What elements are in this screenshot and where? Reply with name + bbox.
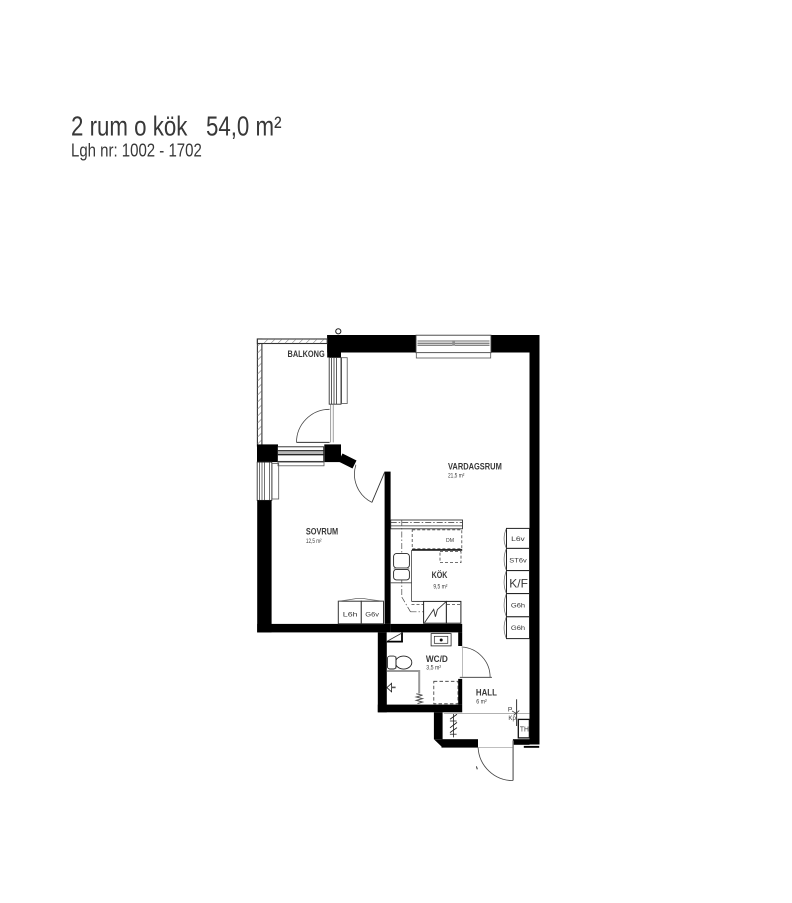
svg-text:SOVRUM: SOVRUM [306,526,338,536]
svg-text:HALL: HALL [476,688,497,698]
svg-text:DM: DM [446,538,454,544]
svg-text:BALKONG: BALKONG [288,349,325,360]
svg-text:G6v: G6v [365,611,379,618]
svg-text:ST6v: ST6v [509,557,527,564]
svg-text:L6h: L6h [343,611,358,618]
svg-text:WC/D: WC/D [426,654,448,664]
svg-text:KÖK: KÖK [432,570,448,580]
svg-text:12,5 m²: 12,5 m² [306,538,322,545]
svg-text:2 rum o kök 54,0 m²: 2 rum o kök 54,0 m² [71,111,282,142]
svg-text:9,5 m²: 9,5 m² [433,583,447,590]
svg-text:21,5 m²: 21,5 m² [448,472,464,479]
svg-text:P: P [508,707,513,714]
svg-text:3,5 m²: 3,5 m² [426,665,441,672]
svg-text:G6h: G6h [511,625,525,632]
svg-text:L6v: L6v [511,536,525,543]
svg-text:Lgh nr: 1002 - 1702: Lgh nr: 1002 - 1702 [71,140,202,161]
svg-text:Kp: Kp [508,715,516,722]
svg-text:VARDAGSRUM: VARDAGSRUM [448,461,502,471]
svg-text:6 m²: 6 m² [476,699,487,706]
svg-text:G6h: G6h [511,603,525,610]
svg-text:K/F: K/F [509,577,528,591]
svg-text:TH: TH [520,724,529,733]
